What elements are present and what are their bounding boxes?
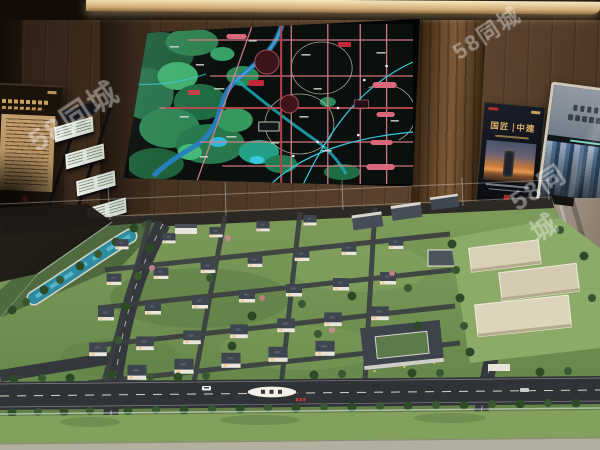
future-phase-buildings: [448, 218, 600, 371]
scale-model-table: [0, 178, 600, 450]
sales-center-photo: 国匠 中建: [0, 0, 600, 450]
signage-headline-row2: [568, 114, 600, 125]
tower-silhouette: [503, 151, 515, 178]
info-board-heading-line1: [2, 99, 49, 105]
site-wall-sign: [488, 364, 510, 371]
poster-title-right: 中建: [516, 121, 536, 135]
road-name-glyphs: [261, 390, 282, 394]
region-map-graphic: [129, 24, 413, 184]
signage-headline-row1: [573, 105, 600, 115]
signage-headline-band: [548, 85, 600, 144]
foreground-lawn: [0, 410, 600, 450]
poster-title: 国匠 中建: [490, 119, 536, 135]
poster-title-divider: [512, 123, 514, 132]
info-board-logo: [47, 91, 56, 94]
wall-map-screen: [122, 18, 420, 190]
leaflet: [54, 116, 94, 144]
developer-logo-red: [488, 107, 498, 111]
poster-title-left: 国匠: [490, 119, 510, 133]
poster-subtitle-bar: [495, 135, 529, 140]
info-board-heading-line2: [2, 105, 44, 110]
project-logo-gold: [531, 111, 540, 114]
red-mini-sign: [296, 398, 305, 401]
